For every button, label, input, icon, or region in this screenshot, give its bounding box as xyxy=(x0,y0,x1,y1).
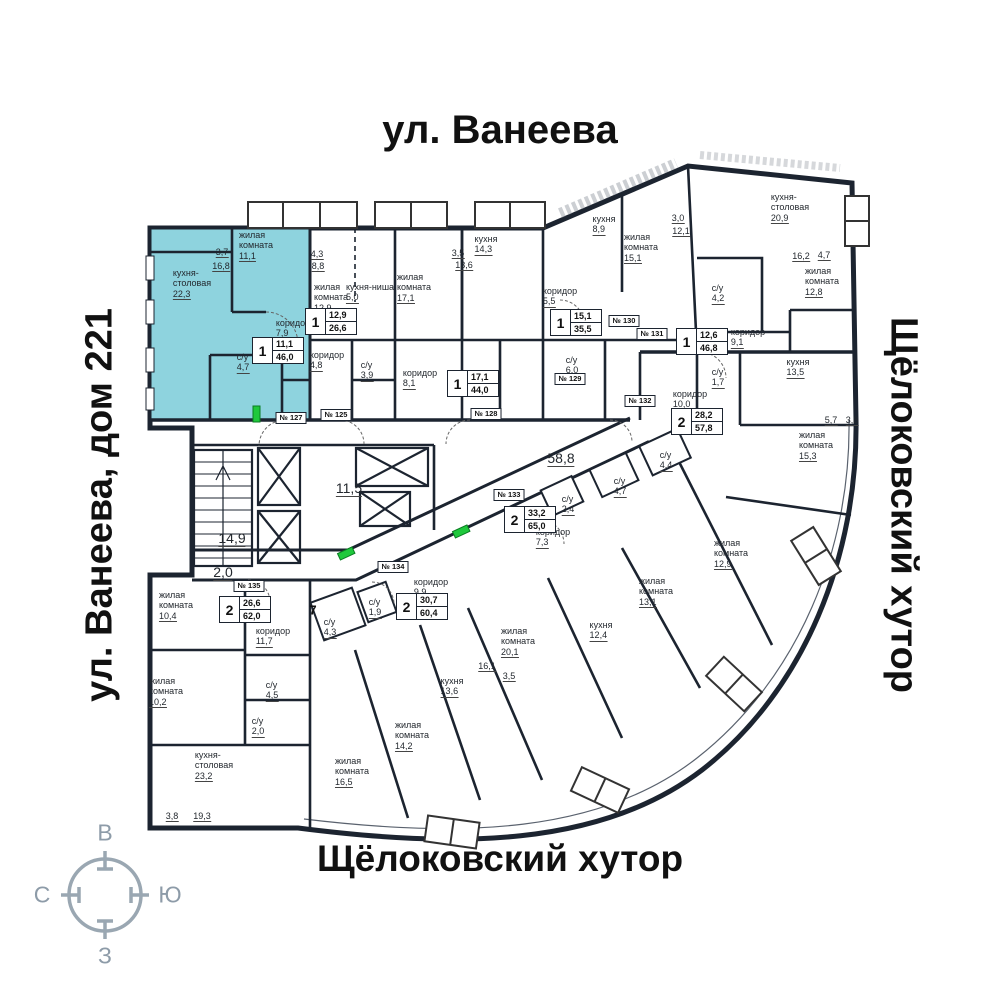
room-label: с/у1,7 xyxy=(712,367,725,389)
room-label: жилаякомната12,9 xyxy=(714,538,748,570)
room-label: жилаякомната15,3 xyxy=(799,430,833,462)
room-label: коридор4,8 xyxy=(310,350,344,372)
apartment-badge[interactable]: 112,646,8 xyxy=(676,328,728,355)
room-label: с/у4,3 xyxy=(324,617,337,639)
room-label: коридор5,5 xyxy=(543,286,577,308)
unit-number-plate: № 134 xyxy=(378,561,409,573)
compass-letter-south: Ю xyxy=(158,882,181,909)
street-label-bottom: Щёлоковский хутор xyxy=(317,838,683,880)
unit-number-plate: № 133 xyxy=(494,489,525,501)
room-label: с/у3,9 xyxy=(361,360,374,382)
room-label: с/у4,7 xyxy=(614,476,627,498)
apartment-badge[interactable]: 111,146,0 xyxy=(252,337,304,364)
apartment-badge[interactable]: 112,926,6 xyxy=(305,308,357,335)
compass-letter-west: З xyxy=(98,943,112,970)
room-label: кухня14,3 xyxy=(475,234,498,256)
compass-letter-east: В xyxy=(97,820,112,847)
dimension-label: 11,5 xyxy=(336,480,362,496)
room-label: кухня-ниша5,0 xyxy=(346,282,394,304)
dimension-label: 12,1 xyxy=(672,226,690,236)
floor-plan-page: ул. Ванеева ул. Ванеева, дом 221 Щёлоков… xyxy=(0,0,1000,1000)
room-label: жилаякомната10,4 xyxy=(159,590,193,622)
room-label: жилаякомната16,5 xyxy=(335,756,369,788)
room-label: кухня13,5 xyxy=(787,357,810,379)
dimension-label: 16,1 xyxy=(478,661,496,671)
room-label: жилаякомната13,1 xyxy=(639,576,673,608)
room-label: с/у2,4 xyxy=(562,494,575,516)
apartment-badge[interactable]: 228,257,8 xyxy=(671,408,723,435)
room-label: коридор8,1 xyxy=(403,368,437,390)
street-label-left: ул. Ванеева, дом 221 xyxy=(79,308,122,702)
apartment-badge[interactable]: 117,144,0 xyxy=(447,370,499,397)
unit-number-plate: № 135 xyxy=(234,580,265,592)
dimension-label: 3,5 xyxy=(452,248,465,258)
dimension-label: 58,8 xyxy=(547,450,574,466)
apartment-badge[interactable]: 230,760,4 xyxy=(396,593,448,620)
unit-number-plate: № 125 xyxy=(321,409,352,421)
unit-number-plate: № 130 xyxy=(609,315,640,327)
dimension-label: 3,0 xyxy=(672,213,685,223)
floor-indicator: 7 xyxy=(309,603,316,618)
dimension-label: 5,7 xyxy=(825,415,838,425)
room-label: жилаякомната20,1 xyxy=(501,626,535,658)
room-label: с/у2,0 xyxy=(252,716,265,738)
dimension-label: 16,2 xyxy=(792,251,810,261)
room-label: жилаякомната11,1 xyxy=(239,230,273,262)
room-label: с/у4,4 xyxy=(660,450,673,472)
street-label-right: Щёлоковский хутор xyxy=(882,317,925,693)
room-label: жилаякомната12,8 xyxy=(805,266,839,298)
compass-letter-north: С xyxy=(34,882,51,909)
dimension-label: 4,3 xyxy=(311,249,324,259)
dimension-label: 19,3 xyxy=(193,811,211,821)
room-label: жилаякомната17,1 xyxy=(397,272,431,304)
room-label: кухня-столовая22,3 xyxy=(173,268,211,300)
dimension-label: 13,6 xyxy=(455,260,473,270)
unit-number-plate: № 128 xyxy=(471,408,502,420)
unit-number-plate: № 132 xyxy=(625,395,656,407)
apartment-badge[interactable]: 233,265,0 xyxy=(504,506,556,533)
room-label: кухня8,9 xyxy=(593,214,616,236)
room-label: с/у4,2 xyxy=(712,283,725,305)
dimension-label: 3,8 xyxy=(846,415,859,425)
dimension-label: 2,0 xyxy=(213,564,232,580)
balcony-hatch-band xyxy=(700,155,840,168)
apartment-badge[interactable]: 226,662,0 xyxy=(219,596,271,623)
dimension-label: 4,7 xyxy=(818,250,831,260)
room-label: кухня-столовая20,9 xyxy=(771,192,809,224)
dimension-label: 14,9 xyxy=(218,530,245,546)
room-label: жилаякомната10,2 xyxy=(149,676,183,708)
dimension-label: 16,8 xyxy=(212,261,230,271)
dimension-label: 8,8 xyxy=(312,261,325,271)
room-label: с/у1,9 xyxy=(369,597,382,619)
unit-number-plate: № 129 xyxy=(555,373,586,385)
street-label-top: ул. Ванеева xyxy=(382,108,617,153)
unit-number-plate: № 131 xyxy=(637,328,668,340)
room-label: кухня13,6 xyxy=(441,676,464,698)
apartment-badge[interactable]: 115,135,5 xyxy=(550,309,602,336)
room-label: кухня-столовая23,2 xyxy=(195,750,233,782)
dimension-label: 3,8 xyxy=(166,811,179,821)
dimension-label: 3,7 xyxy=(216,247,229,257)
unit-number-plate: № 127 xyxy=(276,412,307,424)
room-label: с/у4,5 xyxy=(266,680,279,702)
compass-icon xyxy=(61,851,149,939)
dimension-label: 3,5 xyxy=(503,671,516,681)
room-label: жилаякомната15,1 xyxy=(624,232,658,264)
room-label: кухня12,4 xyxy=(590,620,613,642)
room-label: жилаякомната14,2 xyxy=(395,720,429,752)
room-label: коридор9,1 xyxy=(731,327,765,349)
room-label: коридор11,7 xyxy=(256,626,290,648)
room-label: с/у4,7 xyxy=(237,352,250,374)
